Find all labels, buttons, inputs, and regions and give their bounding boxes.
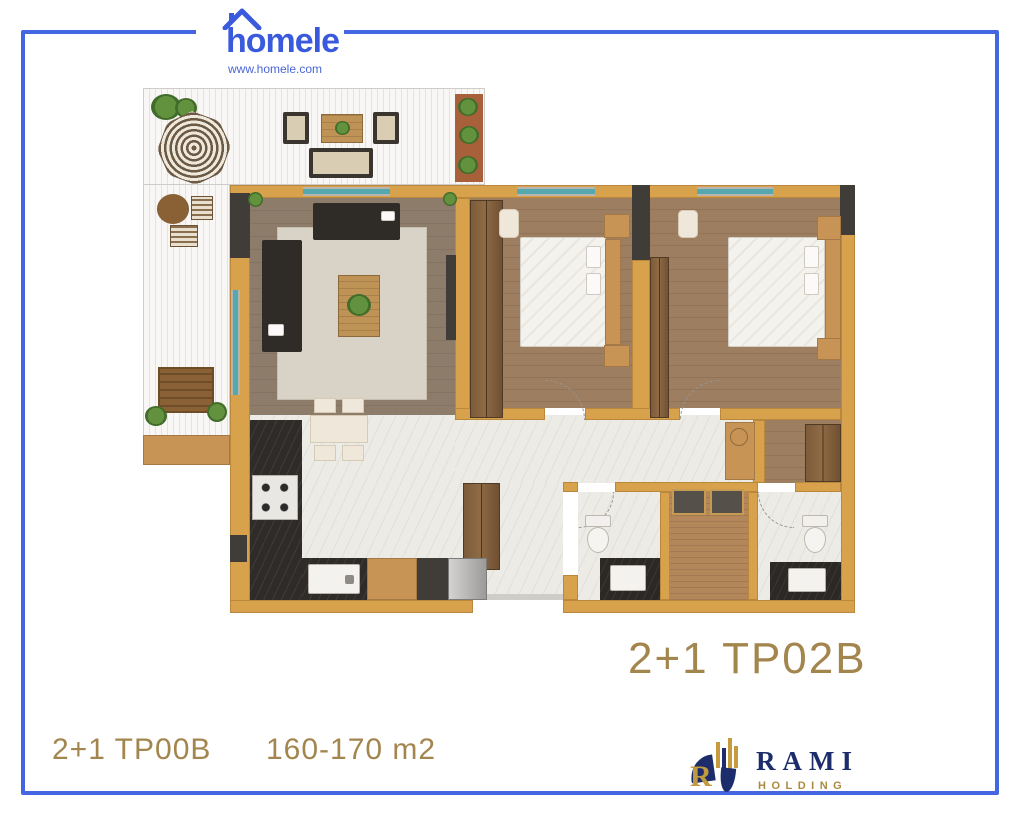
bed-pillow: [586, 246, 601, 268]
bed-pillow: [804, 273, 819, 295]
terrace-planter: [455, 94, 483, 182]
dryer-unit: [710, 489, 744, 515]
bedroom-1-nightstand: [604, 345, 630, 367]
bathroom-2-vanity: [770, 562, 841, 600]
monogram-bar: [728, 738, 732, 770]
terrace-bench: [158, 367, 214, 413]
column-left-low: [230, 535, 247, 562]
bedroom-2-bed: [728, 237, 825, 347]
dining-chair: [342, 398, 364, 413]
outdoor-armchair: [283, 112, 309, 144]
bedroom-1-bed: [520, 237, 606, 347]
bathroom-2-toilet-tank: [802, 515, 828, 527]
window-bedroom-1: [517, 187, 595, 196]
fridge: [448, 558, 487, 600]
wall-right: [841, 198, 855, 613]
brand-wordmark: homele: [226, 22, 339, 61]
outdoor-sofa: [309, 148, 373, 178]
bathroom-1-sink: [610, 565, 646, 591]
tv-unit: [446, 255, 456, 340]
bathroom-1-vanity: [600, 558, 660, 600]
wall-living-bedroom1: [455, 198, 470, 420]
dining-chair: [342, 445, 364, 461]
terrace-round-table: [157, 194, 189, 224]
monogram-bar: [722, 748, 726, 768]
corridor-cabinet: [725, 422, 755, 480]
sofa-top: [313, 203, 400, 240]
bedroom-2-nightstand: [817, 338, 841, 360]
wall-bath1-laundry: [660, 492, 670, 600]
column-top-left: [230, 193, 250, 258]
armchair-cushion: [287, 116, 305, 140]
terrace-parapet-wall: [143, 435, 230, 465]
bedroom-1-headboard: [605, 239, 621, 345]
developer-division: HOLDING: [758, 780, 847, 792]
column-top-right: [840, 185, 855, 235]
wall-entry-jog: [563, 575, 578, 600]
floor-plan: [143, 88, 855, 615]
monogram-letter: R: [690, 760, 712, 794]
wall-bedroom1-bedroom2: [632, 260, 650, 420]
window-living: [303, 187, 390, 196]
planter-plant-icon: [458, 156, 478, 174]
bed-pillow: [804, 246, 819, 268]
sofa-pillow: [268, 324, 284, 336]
table-plant-icon: [335, 121, 350, 135]
brand-website: www.homele.com: [210, 62, 340, 76]
sofa-pillow: [381, 211, 395, 221]
corner-plant-icon: [248, 192, 263, 207]
monogram-drop-shape: [719, 767, 736, 792]
bedroom-2-headboard: [825, 239, 841, 345]
sofa-left: [262, 240, 302, 352]
bedroom-2-nightstand: [817, 216, 841, 240]
armchair-cushion: [377, 116, 395, 140]
monogram-bar: [716, 742, 720, 768]
wall-laundry-bath2: [748, 492, 758, 600]
area-range-label: 160-170 m2: [266, 733, 436, 767]
terrace-plant-icon: [207, 402, 227, 422]
window-bedroom-2: [697, 187, 773, 196]
corner-plant-icon: [443, 192, 457, 206]
table-plant-icon: [347, 294, 371, 316]
terrace-glass-door: [231, 290, 240, 395]
outdoor-armchair: [373, 112, 399, 144]
planter-plant-icon: [459, 126, 479, 144]
dining-chair: [314, 398, 336, 413]
bedroom-1-nightstand: [604, 214, 630, 238]
stove: [252, 475, 298, 520]
developer-name: RAMI: [756, 746, 859, 777]
rami-monogram-icon: R: [688, 738, 746, 798]
developer-logo: R RAMI HOLDING: [688, 738, 988, 798]
monogram-bar: [734, 746, 738, 768]
wall-bath-top-a: [563, 482, 578, 492]
dining-chair: [314, 445, 336, 461]
hall-cabinet: [463, 483, 500, 570]
terrace-chair: [170, 225, 198, 247]
dressing-wardrobe: [805, 424, 841, 482]
terrace-chair: [191, 196, 213, 220]
washer-unit: [672, 489, 706, 515]
faucet-icon: [345, 575, 354, 584]
kitchen-sink: [308, 564, 360, 594]
kitchen-cabinet: [367, 558, 417, 600]
wall-bath-top-c: [795, 482, 841, 492]
dining-table: [310, 415, 368, 443]
bedroom-2-wardrobe: [650, 257, 669, 418]
wall-bottom-left: [230, 600, 473, 613]
wall-corridor-c: [720, 408, 841, 420]
column-mid: [632, 185, 650, 260]
kitchen-tall-unit: [417, 558, 448, 600]
bedroom-1-mat: [499, 209, 519, 238]
planter-plant-icon: [458, 98, 478, 116]
bedroom-2-mat: [678, 210, 698, 238]
bathroom-2-sink: [788, 568, 826, 592]
outdoor-coffee-table: [321, 114, 363, 143]
unit-type-label: 2+1 TP00B: [52, 733, 211, 767]
terrace-plant-icon: [145, 406, 167, 426]
corridor-floor: [455, 415, 760, 483]
coffee-table: [338, 275, 380, 337]
sofa-cushion: [313, 152, 369, 174]
brochure-canvas: homele www.homele.com: [0, 0, 1024, 819]
plan-code-label: 2+1 TP02B: [628, 634, 867, 684]
bed-pillow: [586, 273, 601, 295]
cabinet-basin-icon: [730, 428, 748, 446]
bathroom-1-toilet-tank: [585, 515, 611, 527]
wall-bottom-right: [563, 600, 855, 613]
